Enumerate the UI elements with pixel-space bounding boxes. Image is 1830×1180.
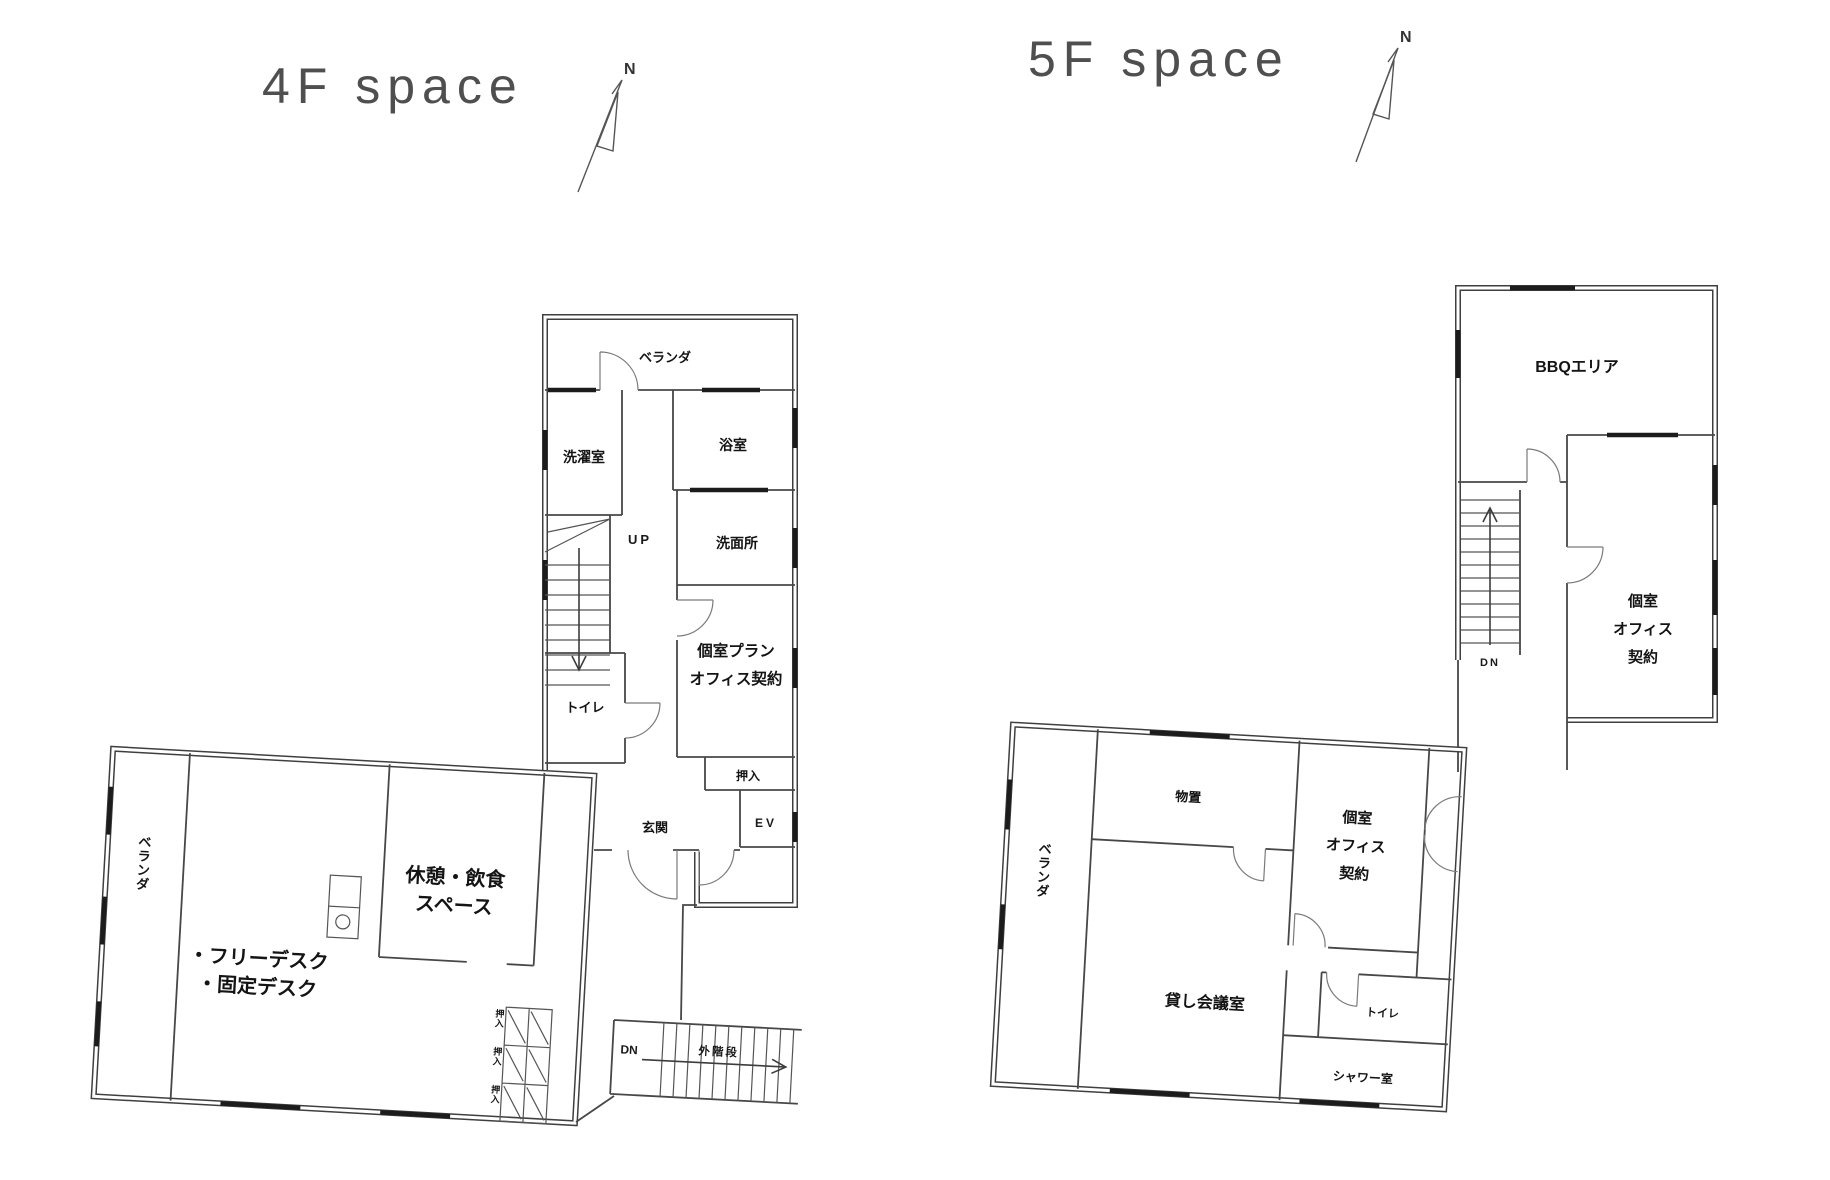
- closet-label-1: 押入: [494, 1008, 505, 1029]
- room-label-veranda-top: ベランダ: [639, 350, 691, 365]
- room-label-shower: シャワー室: [1332, 1068, 1393, 1086]
- room-label-desks-line1: ・フリーデスク: [188, 942, 329, 974]
- floor4-compass-icon: N: [578, 61, 636, 192]
- stairs-dn-icon: [1461, 500, 1520, 645]
- room-label-office-line1: 個室プラン: [696, 641, 775, 660]
- floor5-compass-label: N: [1400, 29, 1412, 46]
- floor-plans-canvas: 4F space N: [0, 0, 1830, 1180]
- room-label-office-upper-line2: オフィス: [1613, 621, 1673, 638]
- room-label-storage: 物置: [1175, 789, 1202, 805]
- floor4-title: 4F space: [262, 58, 524, 114]
- room-label-meeting: 貸し会議室: [1163, 990, 1245, 1013]
- room-label-entrance: 玄関: [642, 820, 668, 835]
- room-label-lounge-line2: スペース: [414, 893, 493, 919]
- floor4-corridor: [576, 905, 697, 1122]
- floor5-compass-icon: N: [1356, 29, 1412, 162]
- label-up: UP: [628, 532, 652, 547]
- room-label-veranda-5f: ベランダ: [1036, 841, 1052, 899]
- room-label-bbq: BBQエリア: [1535, 359, 1619, 376]
- exterior-stairs: DN 外階段: [610, 1020, 802, 1104]
- floor-plan-page: 4F space N: [0, 0, 1830, 1180]
- floor5-plan: 5F space N BBQエリア DN 個室: [993, 29, 1715, 1109]
- floor4-plan: 4F space N: [94, 58, 802, 1125]
- floor4-compass-label: N: [624, 61, 636, 78]
- closet-label-2: 押入: [491, 1045, 502, 1066]
- room-label-office-mid-line1: 個室: [1341, 808, 1373, 828]
- room-label-washroom: 洗面所: [716, 535, 758, 551]
- floor4-wing: 休憩・飲食 スペース ・フリーデスク ・固定デスク ベランダ 押入 押入 押入: [94, 749, 595, 1125]
- room-label-bath: 浴室: [719, 437, 747, 453]
- label-dn-5f: DN: [1480, 657, 1500, 669]
- room-label-elevator: EV: [755, 816, 777, 830]
- floor5-upper: BBQエリア DN 個室 オフィス 契約: [1458, 288, 1715, 772]
- room-label-veranda-side: ベランダ: [136, 834, 152, 892]
- room-label-office-upper-line3: 契約: [1627, 648, 1658, 666]
- closet-label-3: 押入: [489, 1083, 500, 1104]
- closet-units: [500, 1007, 552, 1123]
- label-dn-exterior: DN: [620, 1042, 638, 1057]
- room-label-closet: 押入: [736, 768, 760, 783]
- room-label-office-mid-line2: オフィス: [1325, 836, 1386, 856]
- floor4-tower: ベランダ 洗濯室 浴室 洗面所 UP トイレ 個室プラン オフィス契約 押入 玄…: [545, 317, 795, 905]
- stairs-up-icon: [545, 519, 610, 685]
- room-label-toilet-5f: トイレ: [1366, 1006, 1400, 1021]
- room-label-office-upper-line1: 個室: [1627, 592, 1658, 610]
- room-label-desks-line2: ・固定デスク: [196, 971, 317, 1002]
- room-label-laundry: 洗濯室: [563, 449, 605, 465]
- room-label-toilet: トイレ: [565, 700, 604, 715]
- room-label-office-line2: オフィス契約: [690, 669, 783, 688]
- room-label-office-mid-line3: 契約: [1338, 864, 1370, 884]
- floor5-title: 5F space: [1028, 31, 1290, 87]
- label-exterior-stairs: 外階段: [697, 1043, 739, 1059]
- room-label-lounge-line1: 休憩・飲食: [404, 862, 507, 892]
- floor5-wing: ベランダ 物置 個室 オフィス 契約 貸し会議室 トイレ シャワー室: [993, 725, 1464, 1110]
- sink-fixture-icon: [327, 875, 361, 939]
